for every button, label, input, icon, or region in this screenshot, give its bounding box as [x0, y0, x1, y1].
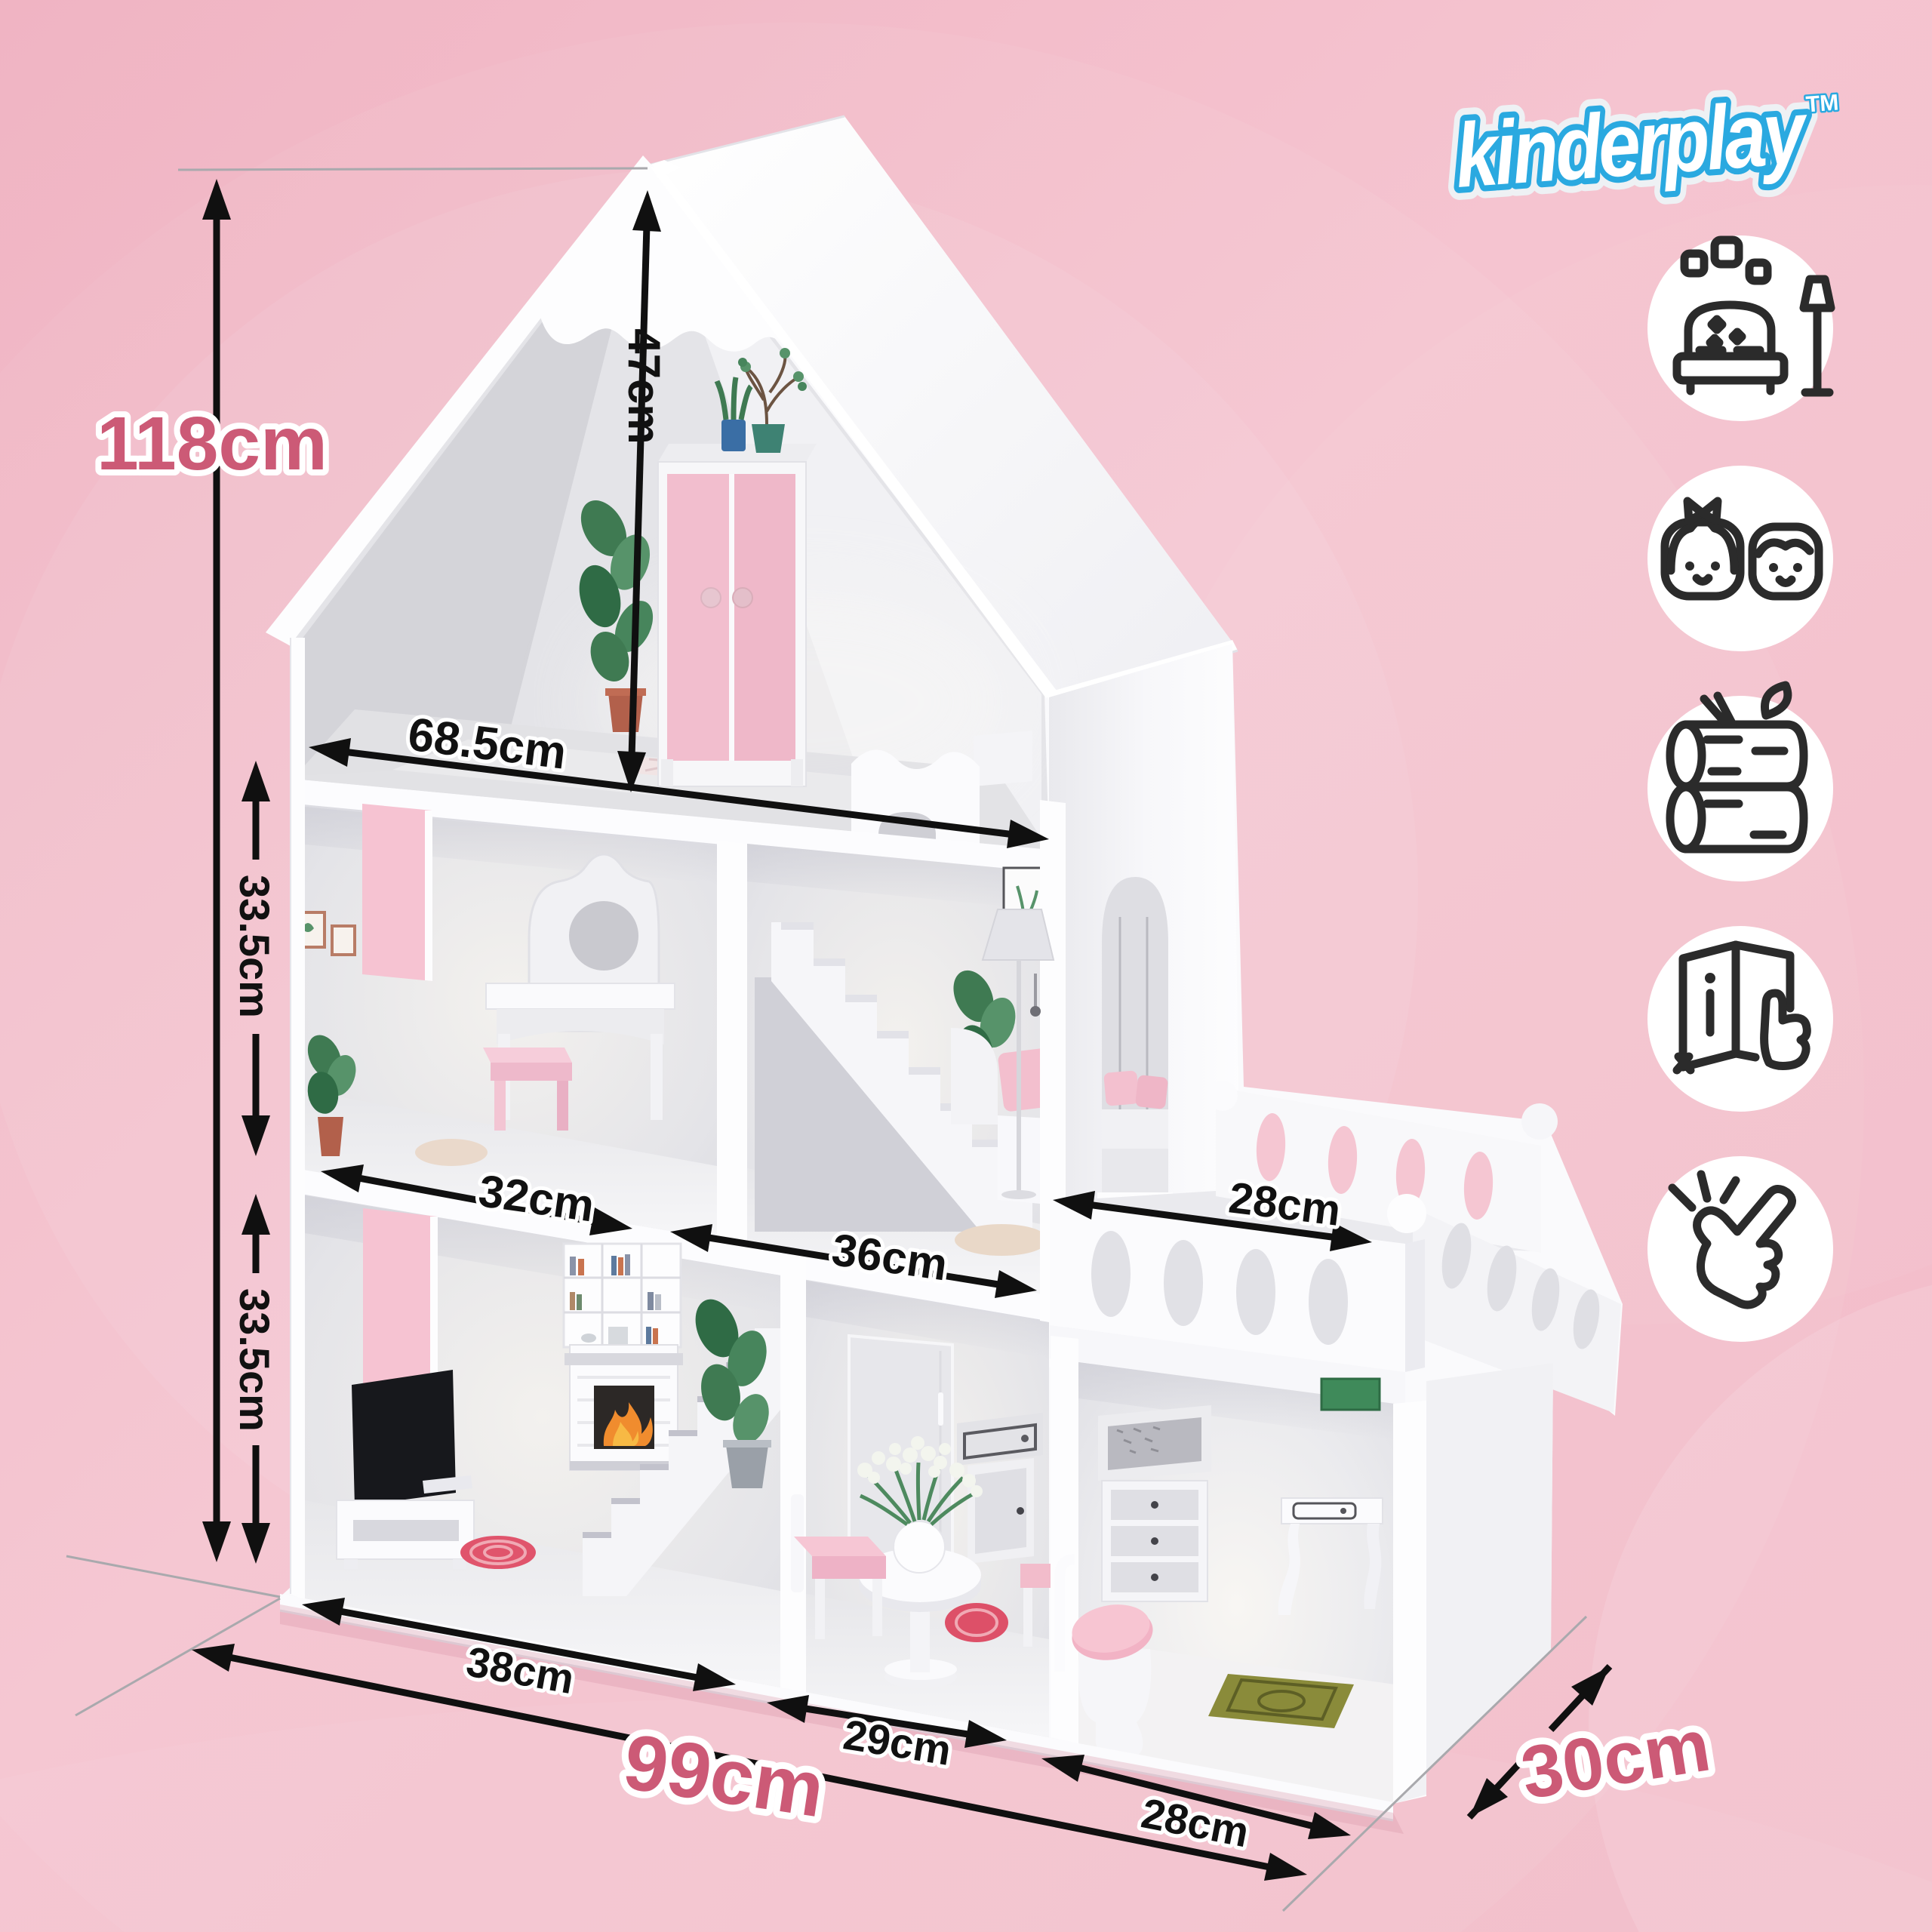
- svg-text:TM: TM: [1805, 90, 1840, 117]
- svg-text:47cm: 47cm: [619, 328, 669, 444]
- svg-text:33.5cm: 33.5cm: [231, 875, 278, 1018]
- svg-text:33.5cm: 33.5cm: [231, 1288, 278, 1432]
- svg-text:118cm: 118cm: [97, 401, 328, 486]
